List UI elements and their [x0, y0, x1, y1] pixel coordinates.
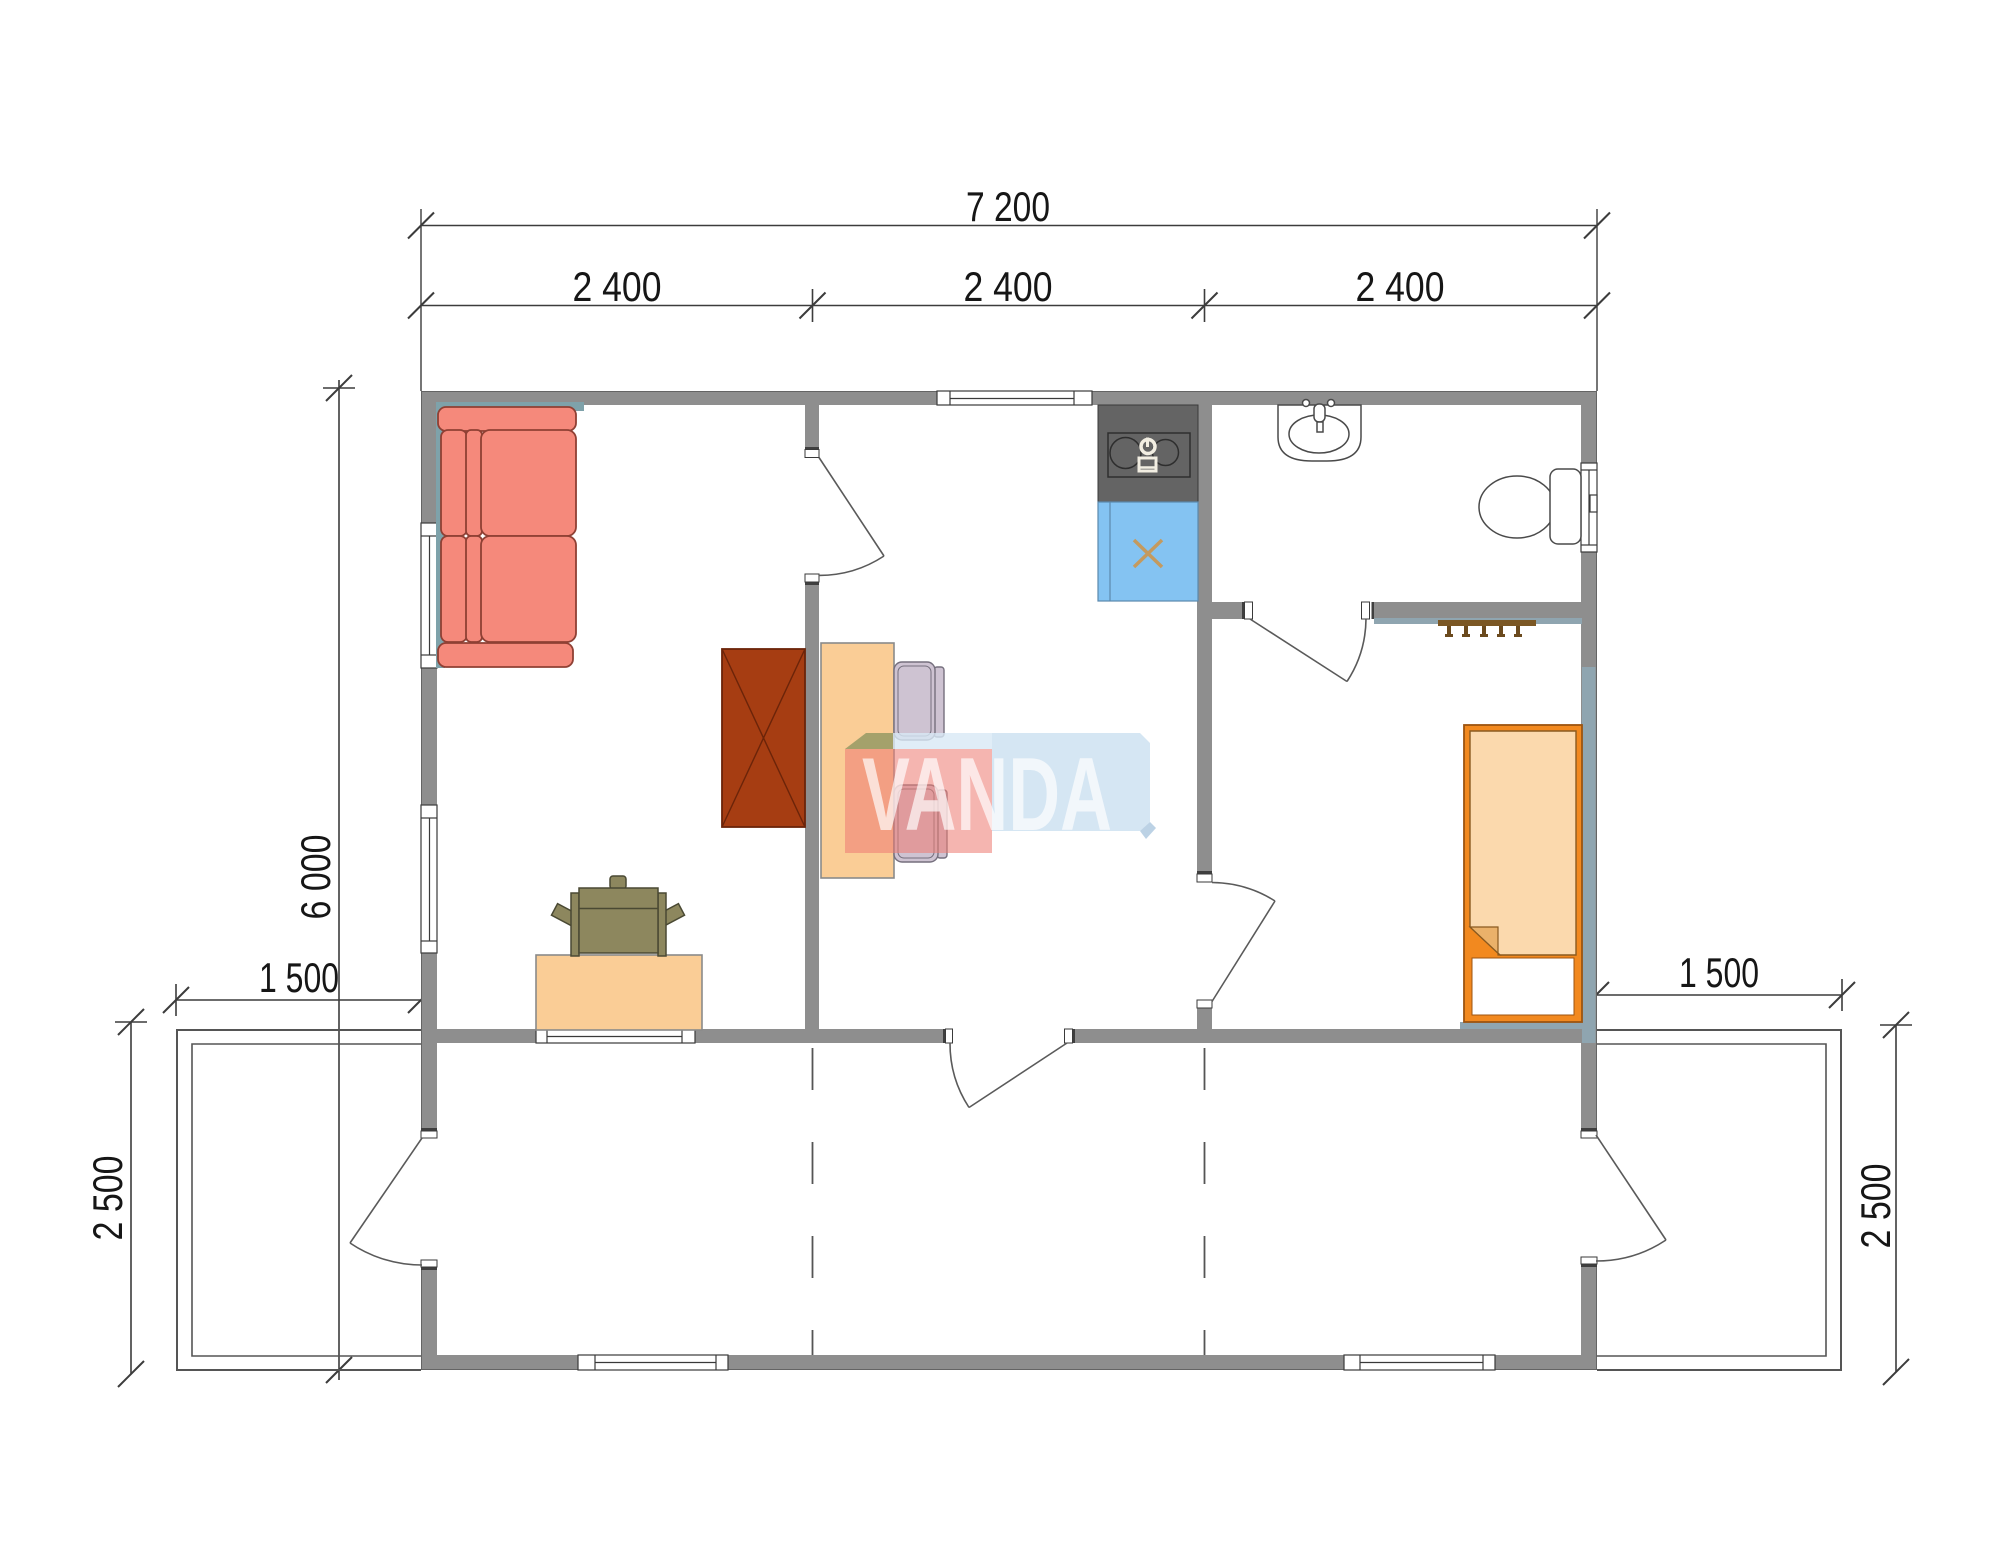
svg-text:VANDA: VANDA — [862, 737, 1112, 853]
svg-text:6 000: 6 000 — [292, 835, 339, 920]
svg-text:2 500: 2 500 — [84, 1156, 131, 1241]
svg-text:2 400: 2 400 — [1356, 263, 1445, 310]
svg-text:2 400: 2 400 — [964, 263, 1053, 310]
svg-text:1 500: 1 500 — [259, 954, 339, 1001]
svg-text:2 400: 2 400 — [573, 263, 662, 310]
svg-text:7 200: 7 200 — [966, 183, 1050, 230]
svg-text:1 500: 1 500 — [1679, 949, 1759, 996]
svg-text:2 500: 2 500 — [1852, 1164, 1899, 1249]
